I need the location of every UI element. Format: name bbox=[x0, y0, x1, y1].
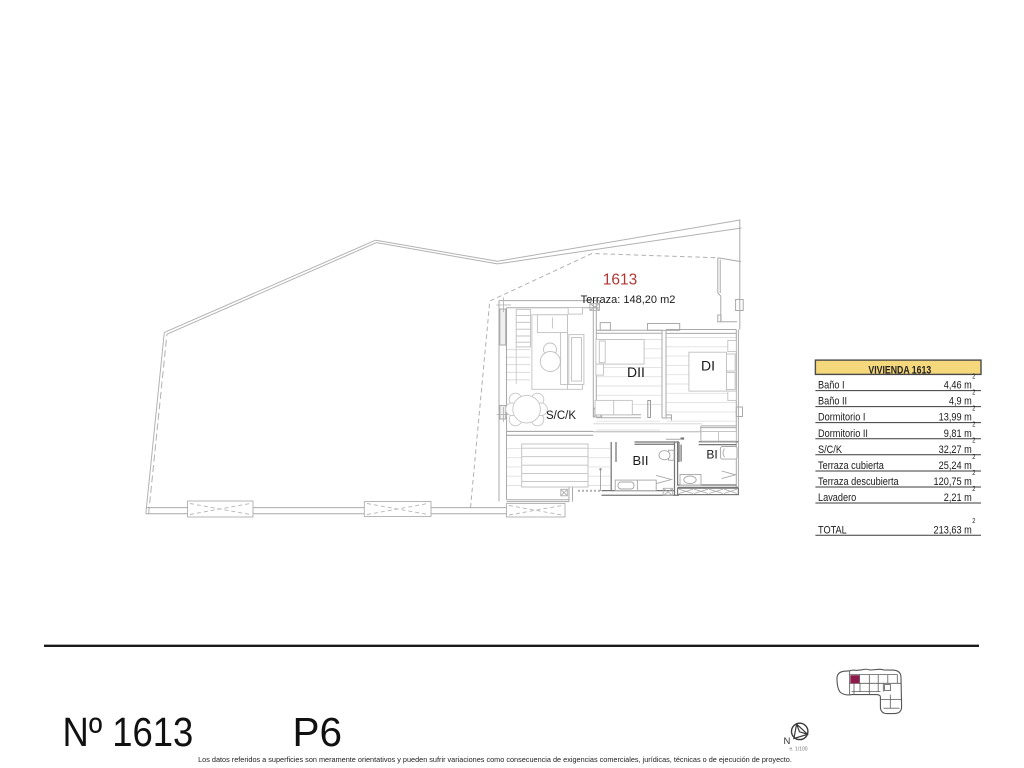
svg-text:2: 2 bbox=[972, 518, 976, 526]
svg-text:Los datos referidos a superfic: Los datos referidos a superficies son me… bbox=[198, 755, 792, 764]
svg-text:BII: BII bbox=[633, 453, 649, 468]
svg-text:Terraza: 148,20 m2: Terraza: 148,20 m2 bbox=[581, 294, 676, 306]
svg-text:2: 2 bbox=[972, 421, 976, 429]
svg-text:P6: P6 bbox=[293, 709, 343, 755]
svg-text:S/C/K: S/C/K bbox=[546, 410, 576, 422]
svg-text:BI: BI bbox=[706, 448, 717, 462]
svg-text:Nº 1613: Nº 1613 bbox=[63, 710, 194, 755]
svg-text:DI: DI bbox=[701, 358, 715, 374]
svg-text:N: N bbox=[784, 736, 791, 747]
svg-text:DII: DII bbox=[627, 364, 645, 380]
svg-text:2: 2 bbox=[972, 389, 976, 397]
svg-text:VIVIENDA 1613: VIVIENDA 1613 bbox=[868, 365, 931, 377]
svg-text:1613: 1613 bbox=[603, 272, 637, 289]
svg-text:2: 2 bbox=[972, 405, 976, 413]
svg-text:e. 1/100: e. 1/100 bbox=[790, 747, 808, 753]
svg-text:2: 2 bbox=[972, 485, 976, 493]
svg-text:2: 2 bbox=[972, 373, 976, 381]
svg-text:2: 2 bbox=[972, 469, 976, 477]
svg-text:2: 2 bbox=[972, 453, 976, 461]
svg-text:2: 2 bbox=[972, 437, 976, 445]
